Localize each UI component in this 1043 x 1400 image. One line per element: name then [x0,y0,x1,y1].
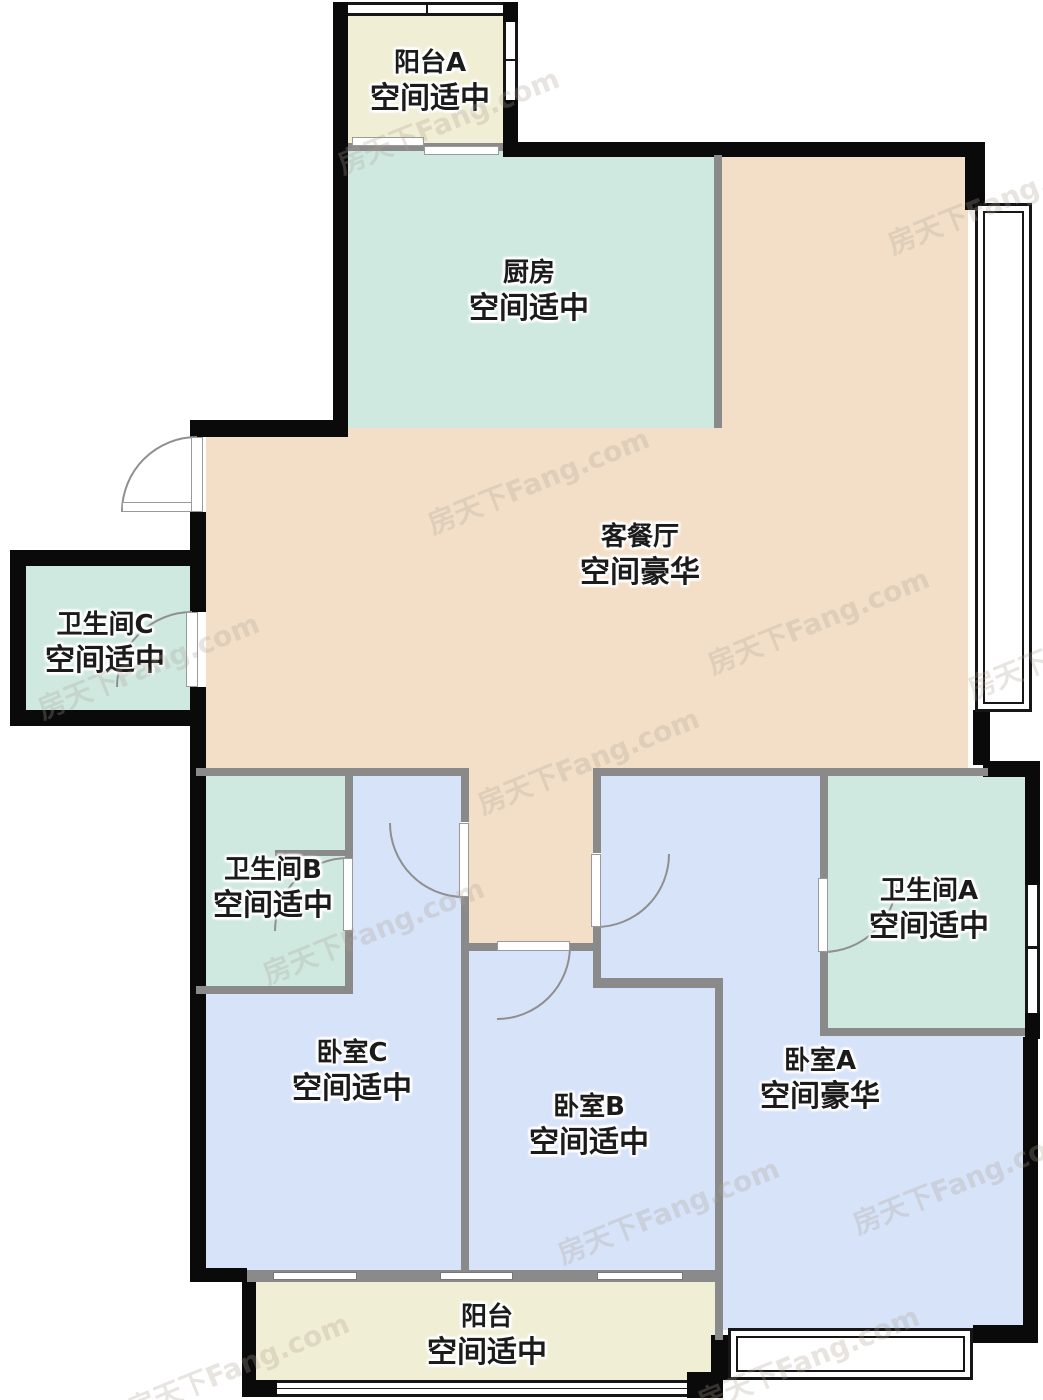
door-entrance-threshold [122,502,192,512]
door-entrance-panel [191,437,203,512]
room-label-bedroom-a: 卧室A 空间豪华 [760,1044,880,1116]
wall-segment [190,420,348,437]
wall-segment [345,776,353,858]
wall-segment [196,768,461,776]
window-balcony-a-right [503,22,518,100]
room-name: 卫生间A [869,874,989,908]
window-glass [983,211,1024,704]
room-label-bedroom-c: 卧室C 空间适中 [292,1036,412,1108]
window-bedroom-b-balcony [597,1272,683,1280]
room-rating: 空间豪华 [760,1078,880,1116]
wall-segment [461,768,469,822]
wall-segment [461,897,469,1270]
room-label-bathroom-a: 卫生间A 空间适中 [869,874,989,946]
wall-segment [10,710,196,726]
wall-segment [965,142,985,210]
wall-segment [10,550,196,566]
window-bedroom-c-balcony [273,1272,357,1280]
room-name: 卫生间B [213,853,333,887]
room-rating: 空间适中 [469,290,589,328]
wall-segment [503,142,985,157]
wall-segment [242,1282,256,1386]
wall-segment [333,2,348,428]
wall-segment [1023,1037,1038,1343]
window-balcony-a-top [348,2,503,16]
door-bedroom-b-panel [497,941,570,951]
bay-window-living [975,203,1032,712]
wall-segment [714,155,722,428]
wall-segment [593,768,988,776]
room-name: 卧室A [760,1044,880,1078]
room-name: 卫生间C [45,608,165,642]
room-name: 阳台 [427,1300,547,1334]
wall-segment [973,1325,1038,1343]
room-name: 卧室C [292,1036,412,1070]
room-name: 卧室B [529,1090,649,1124]
room-rating: 空间适中 [292,1070,412,1108]
room-label-living-dining: 客餐厅 空间豪华 [580,520,700,592]
floor-plan: 阳台A 空间适中 厨房 空间适中 客餐厅 空间豪华 卫生间C 空间适中 卫生间B… [0,0,1043,1400]
wall-segment [461,943,497,951]
room-living-hallway [468,768,593,951]
window-mullion [277,1388,687,1389]
window-balcony-bottom [277,1380,687,1397]
room-name: 厨房 [469,256,589,290]
wall-segment [820,952,828,1028]
wall-segment [715,985,723,1340]
room-label-kitchen: 厨房 空间适中 [469,256,589,328]
wall-segment [593,768,601,853]
door-bedroom-a-panel [591,854,601,927]
wall-segment [687,1372,723,1398]
room-label-bathroom-b: 卫生间B 空间适中 [213,853,333,925]
wall-segment [983,761,1040,777]
door-bedroom-c-panel [459,823,469,897]
room-rating: 空间适中 [370,80,490,118]
room-living-area-upper [722,155,968,428]
door-bathroom-c-panel [186,612,198,687]
room-label-bathroom-c: 卫生间C 空间适中 [45,608,165,680]
room-living-area-main [206,428,968,768]
wall-segment [1025,1013,1040,1039]
wall-segment [593,927,601,985]
door-bathroom-b-panel [343,858,353,931]
room-label-balcony: 阳台 空间适中 [427,1300,547,1372]
room-label-bedroom-b: 卧室B 空间适中 [529,1090,649,1162]
room-rating: 空间适中 [869,908,989,946]
wall-segment [820,776,828,878]
room-rating: 空间适中 [213,887,333,925]
room-rating: 空间豪华 [580,554,700,592]
wall-segment [1025,777,1040,885]
wall-segment [345,931,353,986]
window-bedroom-balcony-mid [440,1272,513,1280]
wall-segment [570,943,601,951]
room-name: 客餐厅 [580,520,700,554]
wall-segment [973,710,990,765]
bay-window-bedroom-a [728,1328,973,1380]
sliding-door-balcony-a-panel [352,137,424,146]
window-bathroom-a [1025,885,1040,1013]
door-bathroom-a-panel [818,878,828,952]
window-mullion [506,59,515,61]
room-rating: 空间适中 [45,642,165,680]
room-label-balcony-a: 阳台A 空间适中 [370,46,490,118]
room-name: 阳台A [370,46,490,80]
room-rating: 空间适中 [529,1124,649,1162]
window-mullion [426,5,428,13]
wall-segment [196,986,353,994]
wall-segment [10,550,26,726]
room-rating: 空间适中 [427,1334,547,1372]
window-glass [736,1336,965,1372]
sliding-door-balcony-a-panel [424,146,499,155]
window-mullion [1028,946,1037,949]
wall-segment [820,1028,1025,1036]
wall-segment [593,978,723,988]
